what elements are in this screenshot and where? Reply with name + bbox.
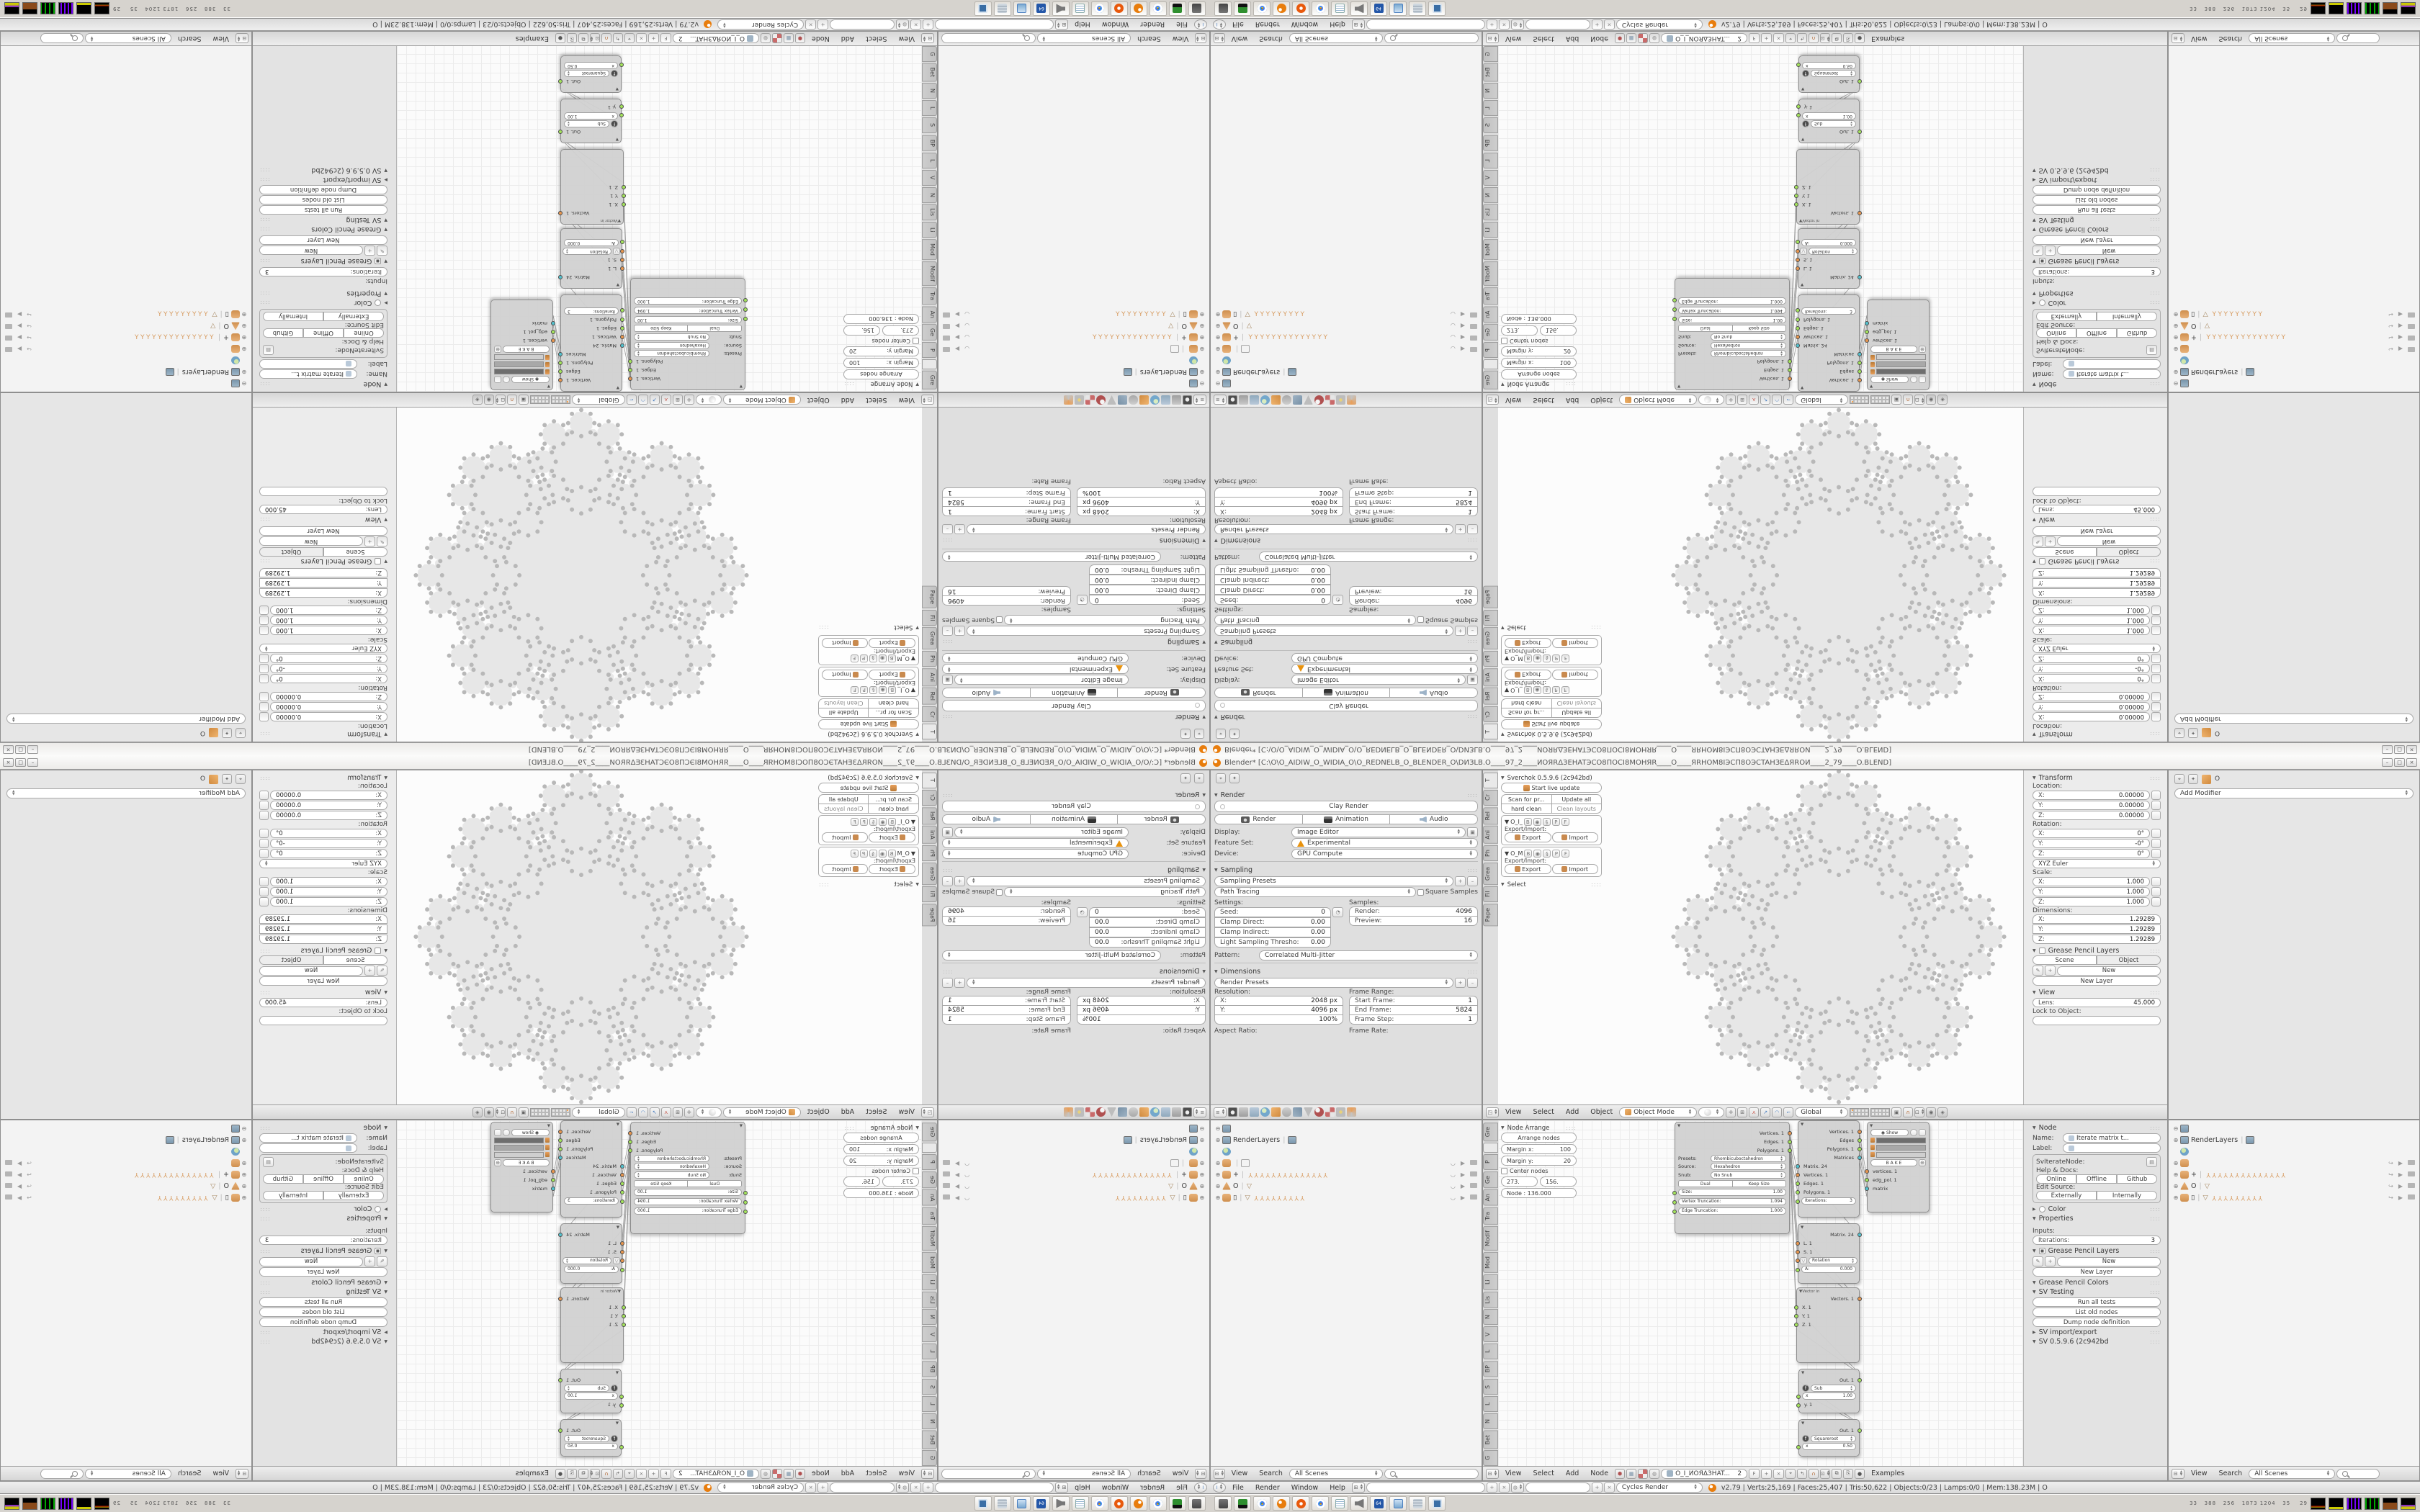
panel-collapse-icon[interactable]: ▶: [2033, 1330, 2036, 1335]
restrict-render-icon[interactable]: [5, 348, 12, 353]
menu-view[interactable]: View: [207, 1470, 234, 1477]
end-frame-field[interactable]: End Frame:5824: [1349, 1005, 1478, 1015]
externally-button[interactable]: Externally: [2036, 312, 2097, 321]
panel-drag-dots[interactable]: ::::: [259, 775, 270, 781]
render-button[interactable]: Render: [1214, 814, 1303, 824]
panel-collapse-icon[interactable]: ▼: [2033, 1248, 2036, 1254]
expand-icon[interactable]: ⊕: [2172, 312, 2180, 318]
texture-tab-icon[interactable]: [1085, 395, 1095, 405]
clamp-indirect-field[interactable]: Clamp Indirect:0.00: [1214, 927, 1331, 937]
outliner-search-input[interactable]: [941, 34, 1036, 44]
socket-x[interactable]: [1796, 63, 1801, 67]
taskbar-calculator-icon[interactable]: [1409, 1, 1426, 16]
light-sampling-threshold-field[interactable]: Light Sampling Thresho:0.00: [1214, 564, 1331, 575]
tab-mod[interactable]: Mod: [1483, 1252, 1498, 1273]
angle-field[interactable]: A:0.000: [1801, 1266, 1856, 1273]
edge-truncation-field[interactable]: Edge Truncation:1.000: [1678, 297, 1786, 305]
scale-x-field[interactable]: X:1.000: [2033, 877, 2150, 886]
node-name-field[interactable]: Iterate matrix t...: [259, 369, 357, 379]
restrict-render-icon[interactable]: [1470, 348, 1477, 353]
update-all-button[interactable]: Update all: [818, 708, 869, 718]
node-vector-in[interactable]: ▼Vector in Vectors. 1 X. 1 Y. 1 Z. 1: [560, 1287, 624, 1363]
node-output[interactable]: Polygons. 1: [631, 1146, 745, 1155]
scan-props-button[interactable]: Scan for pr...: [869, 794, 920, 804]
node-tree-selector[interactable]: O_I_ИOЯΔЗHAT...2: [1661, 1469, 1747, 1479]
menu-node[interactable]: Node: [807, 35, 835, 42]
node-editor-icon[interactable]: ⊟▲▼: [921, 34, 934, 44]
panel-drag-dots[interactable]: ::::: [1467, 867, 1478, 873]
panel-collapse-icon[interactable]: ▼: [2033, 559, 2036, 564]
tray-graph-disk[interactable]: [2365, 1498, 2380, 1510]
outliner-row-mesh[interactable]: ⊕|◡▶: [941, 1157, 1206, 1169]
node-output[interactable]: Matrix. 24: [561, 1230, 622, 1239]
panel-collapse-icon[interactable]: ▼: [915, 882, 919, 887]
outliner-row-empties[interactable]: ⊕+|YYYYYYYYYYYYYY↪▶: [4, 332, 248, 343]
tab-s[interactable]: S: [1483, 117, 1498, 133]
restrict-view-icon[interactable]: ◡: [1451, 1183, 1456, 1189]
gp-checkbox[interactable]: [375, 258, 381, 264]
socket-edges[interactable]: [1857, 369, 1862, 374]
x-field[interactable]: x0.50: [564, 1443, 618, 1450]
node-viewer-draw[interactable]: ▼ ◉Show B A K E⊕ vertices. 1 edg_pol. 1 …: [1867, 1122, 1930, 1212]
outliner-row-renderlayers[interactable]: ⊕RenderLayers|: [4, 1134, 248, 1146]
node-input[interactable]: S. 1: [561, 256, 622, 264]
outliner-row-renderlayers[interactable]: ⊕RenderLayers|: [941, 366, 1206, 378]
info-editor-icon[interactable]: i▲▼: [1194, 19, 1207, 30]
taskbar-image-app-icon[interactable]: [1389, 1, 1407, 16]
tab-l[interactable]: L: [922, 153, 937, 168]
device-dropdown[interactable]: GPU Compute▲▼: [942, 653, 1129, 663]
restrict-select-icon[interactable]: ▶: [1461, 1171, 1465, 1178]
node-input[interactable]: Edges. 1: [1798, 324, 1859, 333]
gp-checkbox[interactable]: [375, 948, 381, 954]
start-live-update-button[interactable]: Start live update: [818, 719, 919, 729]
panel-collapse-icon[interactable]: ▼: [1501, 382, 1505, 387]
modifiers-tab-icon[interactable]: [1293, 395, 1302, 405]
outliner-row-renderlayers[interactable]: ⊕RenderLayers|: [4, 366, 248, 378]
face-color-swatch[interactable]: [494, 355, 544, 361]
minimize-button[interactable]: –: [27, 758, 38, 767]
link-icon[interactable]: ↪: [2388, 1160, 2393, 1166]
menu-add[interactable]: Add: [1561, 35, 1584, 42]
lock-icon[interactable]: [259, 616, 269, 625]
panel-drag-dots[interactable]: ::::: [942, 639, 953, 646]
socket-out[interactable]: [1857, 79, 1862, 84]
scene-name-field[interactable]: [830, 1482, 895, 1493]
screen-layout-icon[interactable]: ⊞▲▼: [1352, 19, 1365, 30]
snap-magnet-icon[interactable]: ∩: [1809, 34, 1819, 44]
scan-props-button[interactable]: Scan for pr...: [1501, 708, 1552, 718]
update-all-button[interactable]: Update all: [1551, 794, 1603, 804]
render-button[interactable]: Render: [1117, 688, 1206, 698]
panel-collapse-icon[interactable]: ▼: [2033, 732, 2036, 737]
add-preset-button[interactable]: +: [954, 876, 965, 886]
tab-tools[interactable]: T: [922, 773, 937, 788]
outliner-search-input[interactable]: [40, 1469, 84, 1479]
node-vector-in[interactable]: ▼Vector in Vectors. 1 X. 1 Y. 1 Z. 1: [1796, 1287, 1860, 1363]
render-samples-field[interactable]: Render:4096: [942, 595, 1071, 606]
resolution-percent-field[interactable]: 100%: [1214, 1014, 1343, 1025]
add-preset-button[interactable]: +: [954, 626, 965, 636]
panel-drag-dots[interactable]: ::::: [2150, 559, 2161, 565]
socket-polygons[interactable]: [620, 318, 624, 322]
socket-vertices[interactable]: [1796, 335, 1800, 339]
online-button[interactable]: Online: [344, 1174, 384, 1184]
render-opengl-icon[interactable]: ◉: [484, 395, 494, 405]
preview-samples-field[interactable]: Preview:16: [1349, 916, 1478, 926]
node-output[interactable]: Vertices. 1: [1675, 1129, 1789, 1138]
outliner-row-mesh[interactable]: ⊕|◡▶: [1214, 1157, 1479, 1169]
rotation-y-field[interactable]: Y:-0°: [270, 839, 387, 848]
gp-new-layer-button[interactable]: New Layer: [259, 235, 387, 245]
layers-grid-2[interactable]: [1870, 1108, 1890, 1117]
pencil-icon[interactable]: ✎: [377, 536, 387, 546]
panel-collapse-icon[interactable]: ▼: [384, 382, 387, 387]
node-input[interactable]: vertices. 1: [1868, 1167, 1929, 1176]
lock-icon[interactable]: [259, 887, 269, 896]
node-input[interactable]: S. 1: [1798, 256, 1859, 264]
run-all-tests-button[interactable]: Run all tests: [2033, 1297, 2161, 1307]
panel-collapse-icon[interactable]: ▼: [2033, 1280, 2036, 1285]
expand-icon[interactable]: ⊕: [2172, 1160, 2180, 1166]
pin-icon[interactable]: ⌖: [1785, 34, 1796, 44]
lock-icon[interactable]: [2151, 654, 2161, 663]
expand-icon[interactable]: ⊕: [240, 312, 248, 318]
iterations-field[interactable]: Iterations:3: [564, 1197, 619, 1205]
panel-collapse-icon[interactable]: ▶: [2033, 1207, 2036, 1212]
presets-dropdown[interactable]: Rhombicuboctahedron▲▼: [634, 350, 709, 357]
snap-element-icon[interactable]: ⊡▲▼: [590, 34, 600, 44]
rotation-mode-dropdown[interactable]: XYZ Euler▲▼: [2033, 644, 2161, 653]
x-field[interactable]: x0.50: [564, 62, 618, 69]
panel-collapse-icon[interactable]: ▼: [384, 1248, 387, 1254]
tab-grease[interactable]: Grea: [922, 627, 937, 649]
panel-collapse-icon[interactable]: ▼: [1501, 1125, 1505, 1130]
node-input[interactable]: vertices. 1: [491, 336, 552, 345]
panel-collapse-icon[interactable]: ▼: [384, 227, 387, 232]
folder-lock-icon[interactable]: ▣: [1467, 675, 1478, 685]
audio-button[interactable]: Audio: [942, 688, 1031, 698]
tree-type-shader-icon[interactable]: ⬢: [1615, 34, 1625, 44]
rotate-widget-icon[interactable]: ↗: [650, 395, 660, 405]
socket-x[interactable]: [622, 202, 626, 207]
feature-set-dropdown[interactable]: Experimental▲▼: [1291, 664, 1478, 674]
fake-user-toggle[interactable]: F: [1561, 818, 1569, 826]
dimension-z-field[interactable]: Z:1.29289: [2033, 568, 2161, 577]
dimension-z-field[interactable]: Z:1.29289: [259, 568, 387, 577]
start-frame-field[interactable]: Start Frame:1: [1349, 506, 1478, 516]
render-anim-opengl-icon[interactable]: ◈: [1937, 1107, 1948, 1117]
gp-checkbox[interactable]: [2039, 948, 2045, 954]
node-input[interactable]: Edges. 1: [561, 1179, 622, 1188]
export-button[interactable]: Export: [869, 670, 916, 680]
online-button[interactable]: Online: [344, 328, 384, 338]
tab-n[interactable]: N: [922, 1309, 937, 1325]
lock-icon[interactable]: [259, 829, 269, 838]
tree-type-shader-icon[interactable]: ⬢: [795, 1469, 805, 1479]
add-preset-button[interactable]: +: [954, 978, 965, 988]
parent-tree-icon[interactable]: ↰: [613, 34, 623, 44]
expand-icon[interactable]: ⊕: [1198, 346, 1206, 353]
start-live-update-button[interactable]: Start live update: [1501, 719, 1602, 729]
scan-props-button[interactable]: Scan for pr...: [869, 708, 920, 718]
x-field[interactable]: x0.50: [1802, 1443, 1856, 1450]
gp-new-layer-button[interactable]: New Layer: [259, 526, 387, 536]
panel-collapse-icon[interactable]: ▼: [915, 625, 919, 630]
frame-step-field[interactable]: Frame Step:1: [1349, 487, 1478, 498]
panel-drag-dots[interactable]: ::::: [2150, 290, 2161, 297]
panel-collapse-icon[interactable]: ▼: [384, 948, 387, 953]
collapse-icon[interactable]: ⊖: [2172, 1125, 2180, 1132]
restrict-render-icon[interactable]: [5, 1160, 12, 1165]
tab-bp[interactable]: BP: [1483, 1361, 1498, 1377]
panel-drag-dots[interactable]: ::::: [2150, 217, 2161, 223]
node-input[interactable]: Edges. 1: [1798, 1179, 1859, 1188]
panel-collapse-icon[interactable]: ▼: [1214, 868, 1218, 873]
seed-clock-icon[interactable]: ◔: [1077, 595, 1088, 605]
lock-icon[interactable]: [2151, 702, 2161, 711]
dump-node-definition-button[interactable]: Dump node definition: [2033, 1318, 2161, 1327]
menu-help[interactable]: Help: [1070, 1484, 1095, 1492]
node-input[interactable]: Y. 1: [561, 1312, 623, 1320]
expand-icon[interactable]: ⊕: [1214, 1137, 1222, 1143]
outliner-row-o[interactable]: ⊕O|▽◡▶: [1214, 320, 1479, 332]
lock-to-object-field[interactable]: [259, 1016, 387, 1025]
panel-drag-dots[interactable]: ::::: [2150, 300, 2161, 306]
mode-dropdown[interactable]: Object Mode▲▼: [1619, 395, 1697, 405]
square-samples-checkbox[interactable]: [1417, 617, 1424, 624]
info-editor-icon[interactable]: i▲▼: [1194, 1482, 1207, 1493]
doc-icon[interactable]: ▤: [2146, 1157, 2157, 1167]
color-checkbox[interactable]: [2039, 300, 2045, 306]
update-all-button[interactable]: Update all: [818, 794, 869, 804]
rotation-x-field[interactable]: X:0°: [270, 674, 387, 683]
remove-preset-button[interactable]: –: [1467, 876, 1478, 886]
socket-matrix[interactable]: [558, 1233, 563, 1237]
taskbar-blender-icon[interactable]: [1273, 1496, 1290, 1511]
clay-render-slot[interactable]: Clay Render: [1214, 700, 1478, 711]
new-tree-button[interactable]: +: [1761, 34, 1772, 44]
socket-edgpol[interactable]: [551, 330, 555, 334]
import-button[interactable]: Import: [822, 638, 869, 648]
constraints-tab-icon[interactable]: [1282, 395, 1291, 405]
node-input[interactable]: X. 1: [1797, 200, 1859, 209]
tray-graph-swap[interactable]: [22, 1498, 37, 1510]
tab-li[interactable]: Li: [922, 222, 937, 238]
socket-polygons[interactable]: [558, 361, 563, 365]
outliner-row-box[interactable]: ⊕▯|▽YYYYYYYYY↪▶: [4, 1192, 248, 1203]
node-output[interactable]: Polygons. 1: [561, 359, 622, 367]
render-button[interactable]: Render: [1117, 814, 1206, 824]
panel-collapse-icon[interactable]: ▼: [2033, 227, 2036, 232]
clay-render-slot[interactable]: Clay Render: [942, 801, 1206, 812]
panel-collapse-icon[interactable]: ▼: [2033, 775, 2036, 780]
renderlayers-tab-icon[interactable]: [1161, 1107, 1170, 1117]
dual-button[interactable]: Dual: [688, 1180, 743, 1187]
node-viewer-draw[interactable]: ▼ ◉Show B A K E⊕ vertices. 1 edg_pol. 1 …: [490, 300, 553, 390]
panel-drag-dots[interactable]: ::::: [259, 176, 270, 183]
tree-type-texture-icon[interactable]: [1638, 1469, 1648, 1479]
clean-layouts-button[interactable]: Clean layouts: [818, 804, 869, 814]
panel-drag-dots[interactable]: ::::: [942, 714, 953, 721]
render-samples-field[interactable]: Render:4096: [1349, 595, 1478, 606]
link-icon[interactable]: ↪: [2388, 335, 2393, 341]
node-tree-selector[interactable]: O_I_ИOЯΔЗHAT...2: [673, 1469, 759, 1479]
tab-tra[interactable]: Tra: [922, 1207, 937, 1225]
location-z-field[interactable]: Z:0.00000: [270, 811, 387, 820]
expand-icon[interactable]: ⊕: [1198, 1171, 1206, 1178]
outliner-row-box[interactable]: ⊕▯|▽YYYYYYYYY↪▶: [2172, 309, 2416, 320]
socket-y[interactable]: [1796, 104, 1801, 109]
node-output[interactable]: Edges: [561, 367, 622, 376]
panel-collapse-icon[interactable]: ▶: [384, 300, 387, 305]
margin-x-field[interactable]: Margin x:100: [843, 358, 919, 368]
restrict-select-icon[interactable]: ▶: [17, 346, 22, 353]
tree-type-texture-icon[interactable]: [1638, 34, 1648, 44]
remove-preset-button[interactable]: –: [942, 524, 953, 534]
renderlayers-tab-icon[interactable]: [1250, 395, 1259, 405]
snap-magnet-icon[interactable]: ∩: [1809, 1469, 1819, 1479]
node-input[interactable]: matrix: [491, 1184, 552, 1193]
outliner-search-input[interactable]: [40, 34, 84, 44]
socket-edges[interactable]: [1788, 368, 1792, 372]
expand-icon[interactable]: ⊕: [1214, 1194, 1222, 1201]
tab-create[interactable]: Cr: [1483, 706, 1498, 722]
node-input[interactable]: Polygons. 1: [1798, 1188, 1859, 1197]
taskbar-chrome-icon[interactable]: [1253, 1, 1270, 16]
menu-search[interactable]: Search: [2214, 1470, 2248, 1477]
seed-clock-icon[interactable]: ◔: [1332, 907, 1343, 917]
panel-collapse-icon[interactable]: ▼: [2033, 1125, 2036, 1130]
node-input[interactable]: vertices. 1: [491, 1167, 552, 1176]
tab-tools[interactable]: T: [1483, 773, 1498, 788]
restrict-select-icon[interactable]: ▶: [1461, 346, 1465, 353]
socket-vectors[interactable]: [558, 1297, 563, 1301]
taskbar-chrome2-icon[interactable]: [1312, 1, 1329, 16]
node-input[interactable]: y. 1: [1799, 103, 1859, 111]
keep-size-button[interactable]: Keep Size: [1732, 1180, 1787, 1187]
outliner-editor-icon[interactable]: ⊟▲▼: [1195, 1469, 1206, 1479]
restrict-render-icon[interactable]: [943, 1171, 950, 1176]
socket-y[interactable]: [1796, 1403, 1801, 1408]
node-output[interactable]: Vertices. 1: [631, 374, 745, 383]
scale-z-field[interactable]: Z:1.000: [270, 606, 387, 615]
dimension-x-field[interactable]: X:1.29289: [2033, 588, 2161, 598]
restrict-select-icon[interactable]: ▶: [1461, 1160, 1465, 1166]
scan-props-button[interactable]: Scan for pr...: [1501, 794, 1552, 804]
source-dropdown[interactable]: Hexahedron▲▼: [1711, 1163, 1786, 1170]
tab-active[interactable]: [1483, 359, 1498, 369]
show-toggle-icon[interactable]: ◉: [879, 818, 887, 826]
socket-matrices[interactable]: [1857, 1156, 1862, 1160]
resolution-percent-field[interactable]: 100%: [1077, 487, 1206, 498]
panel-collapse-icon[interactable]: ▼: [384, 990, 387, 995]
node-input[interactable]: Z. 1: [561, 1320, 623, 1329]
menu-select[interactable]: Select: [1528, 396, 1559, 404]
outliner-row-box[interactable]: ⊕▯|▽YYYYYYYYY↪▶: [2172, 1192, 2416, 1203]
edge-color-swatch[interactable]: [494, 362, 544, 368]
node-output[interactable]: Polygons. 1: [1798, 359, 1859, 367]
gp-new-layer-button[interactable]: New Layer: [259, 976, 387, 986]
function-dropdown[interactable]: Squareroot▲▼: [564, 1435, 609, 1442]
resolution-y-field[interactable]: Y:4096 px: [1214, 1005, 1343, 1015]
tray-graph-mem[interactable]: [2329, 1498, 2344, 1510]
light-sampling-threshold-field[interactable]: Light Sampling Thresho:0.00: [1089, 564, 1206, 575]
add-icon[interactable]: +: [2045, 1256, 2056, 1266]
import-button[interactable]: Import: [822, 670, 869, 680]
lock-icon[interactable]: [2151, 887, 2161, 896]
data-tab-icon[interactable]: [1107, 395, 1116, 405]
panel-collapse-icon[interactable]: ▼: [384, 518, 387, 523]
import-button[interactable]: Import: [822, 832, 869, 842]
socket-polygons[interactable]: [628, 359, 632, 364]
folder-lock-icon[interactable]: ▣: [1467, 827, 1478, 837]
run-all-tests-button[interactable]: Run all tests: [259, 205, 387, 215]
manipulator-snap-icon[interactable]: ⊞: [673, 395, 683, 405]
lock-icon[interactable]: [2151, 877, 2161, 886]
clean-layouts-button[interactable]: Clean layouts: [1551, 698, 1603, 708]
taskbar-desktop-icon[interactable]: [974, 1, 992, 16]
node-input[interactable]: Y. 1: [561, 192, 623, 200]
panel-collapse-icon[interactable]: ▼: [1202, 715, 1206, 720]
outliner-row-renderlayers[interactable]: ⊕RenderLayers|: [2172, 366, 2416, 378]
tab-l2[interactable]: L: [922, 100, 937, 116]
render-samples-field[interactable]: Render:4096: [942, 906, 1071, 917]
pin-icon[interactable]: ⌖: [2174, 728, 2184, 738]
add-modifier-dropdown[interactable]: Add Modifier▲▼: [6, 788, 246, 798]
node-input[interactable]: Matrix. 24: [1798, 341, 1859, 350]
process-toggle[interactable]: P: [1552, 850, 1560, 858]
socket-scale[interactable]: [620, 258, 624, 262]
iterations-field[interactable]: Iterations:3: [259, 267, 387, 276]
node-output[interactable]: Out. 1: [1799, 1376, 1859, 1385]
seed-clock-icon[interactable]: ◔: [1332, 595, 1343, 605]
panel-collapse-icon[interactable]: ▼: [384, 732, 387, 737]
tree-type-sverchok-icon[interactable]: ◍: [761, 1469, 771, 1479]
outliner-row-o[interactable]: ⊕O|▽◡▶: [941, 320, 1206, 332]
tray-graph-gpu[interactable]: [2401, 1498, 2416, 1510]
edge-truncation-field[interactable]: Edge Truncation:1.000: [634, 297, 742, 305]
tray-graph-disk[interactable]: [2365, 3, 2380, 15]
margin-x-field[interactable]: Margin x:100: [1501, 1144, 1577, 1154]
panel-drag-dots[interactable]: ::::: [2150, 731, 2161, 737]
scale-y-field[interactable]: Y:1.000: [270, 616, 387, 625]
node-output[interactable]: Polygons. 1: [561, 1145, 622, 1153]
add-icon[interactable]: +: [2045, 246, 2056, 256]
bake-toggle[interactable]: B: [1524, 686, 1532, 694]
info-editor-icon[interactable]: i▲▼: [1213, 19, 1226, 30]
tab-li[interactable]: Li: [922, 1274, 937, 1290]
node-math-sub[interactable]: ▼ Out. 1 fSub▲▼ x1.00 y. 1: [560, 99, 622, 143]
socket-out[interactable]: [1857, 1428, 1862, 1433]
tab-grease[interactable]: Grea: [1483, 863, 1498, 885]
parent-tree-icon[interactable]: ↰: [1797, 34, 1807, 44]
seed-clock-icon[interactable]: ◔: [1077, 907, 1088, 917]
rotation-dropdown[interactable]: Rotation▲▼: [563, 1257, 611, 1264]
function-dropdown[interactable]: Sub▲▼: [1811, 1385, 1856, 1392]
expand-icon[interactable]: ⊕: [240, 369, 248, 376]
restrict-select-icon[interactable]: ▶: [1461, 335, 1465, 341]
integrator-dropdown[interactable]: Path Tracing▲▼: [1004, 887, 1206, 897]
socket-y[interactable]: [619, 1403, 624, 1408]
restrict-select-icon[interactable]: ▶: [2398, 312, 2403, 318]
menu-view[interactable]: View: [2186, 35, 2213, 42]
rotation-axis-icon[interactable]: ▽: [613, 248, 620, 255]
socket-x[interactable]: [1796, 113, 1801, 117]
add-scene-button[interactable]: +: [817, 19, 828, 30]
restrict-select-icon[interactable]: ▶: [1461, 312, 1465, 318]
socket-size[interactable]: [743, 317, 748, 321]
